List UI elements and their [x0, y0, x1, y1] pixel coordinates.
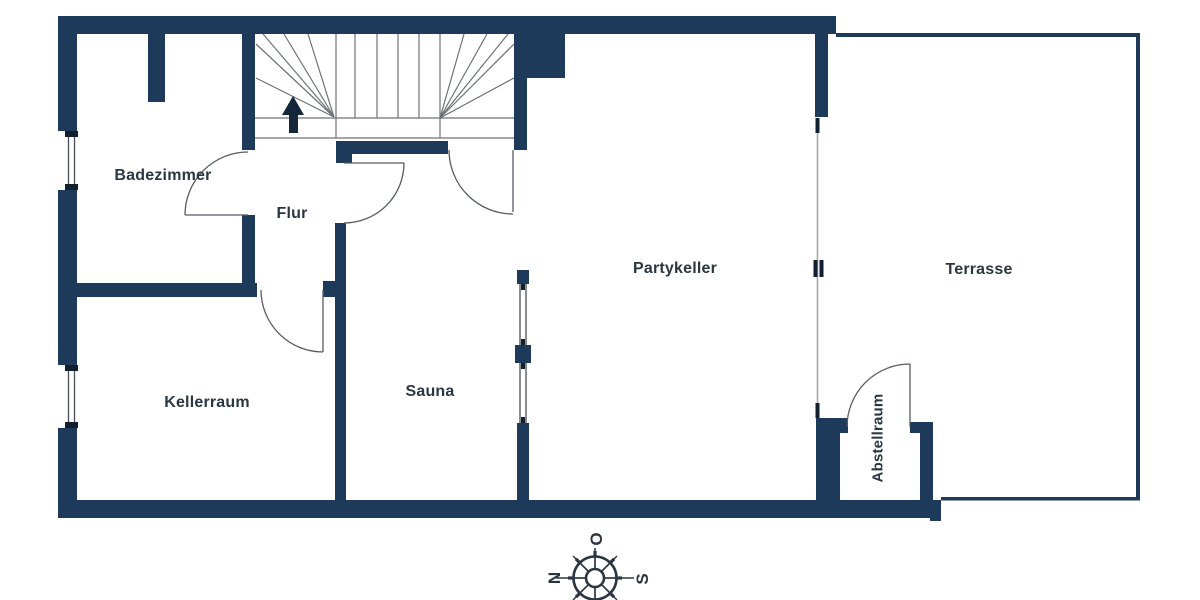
wall-left-upper	[58, 16, 77, 131]
door-stair-landing	[449, 150, 513, 214]
wall-abstellraum-right	[920, 422, 933, 500]
room-label-abstellraum: Abstellraum	[870, 394, 887, 483]
glass-cap	[521, 417, 525, 423]
wall-bottom	[58, 500, 941, 518]
terrace-partition-line	[814, 118, 824, 418]
compass-letter-south: S	[633, 573, 653, 584]
glass-cap	[521, 284, 525, 290]
room-label-terrasse: Terrasse	[945, 261, 1012, 279]
stairs-up-arrow-icon	[282, 96, 304, 133]
terrace-wall-bottom	[941, 497, 1140, 501]
wall-under-stairs-step	[336, 141, 352, 163]
wall-sauna-glass-mid	[515, 345, 531, 363]
wall-bottom-end-step	[930, 518, 941, 521]
room-label-badezimmer: Badezimmer	[114, 167, 211, 185]
partition-cap-top	[816, 118, 820, 133]
wall-flur-sauna	[335, 223, 346, 500]
doors	[185, 150, 910, 427]
window-cap	[65, 365, 78, 371]
window-badezimmer	[65, 131, 78, 190]
wall-left-middle	[58, 190, 77, 365]
wall-under-stairs	[336, 141, 448, 154]
wall-sauna-glass-stub	[517, 270, 529, 284]
terrace-wall-top	[836, 33, 1140, 37]
partition-cap-bottom	[816, 403, 820, 418]
wall-partykeller-terrasse	[815, 34, 828, 117]
exterior-walls	[58, 16, 941, 521]
floor-plan: Badezimmer Flur Kellerraum Sauna Partyke…	[0, 0, 1200, 600]
wall-stair-right-block	[527, 34, 565, 78]
wall-badezimmer-kellerraum-divider	[77, 283, 257, 297]
window-kellerraum	[65, 365, 78, 428]
interior-walls	[77, 34, 933, 500]
compass-rose-icon	[556, 548, 634, 600]
room-label-partykeller: Partykeller	[633, 260, 717, 278]
wall-abstellraum-top-left	[816, 418, 848, 433]
partition-marker-bar-1	[814, 260, 818, 277]
wall-top	[58, 16, 836, 34]
wall-abstellraum-top-right	[910, 422, 933, 433]
wall-kellerraum-door-jamb	[323, 281, 336, 297]
terrace-wall-right	[1136, 33, 1140, 500]
wall-badezimmer-right-upper	[242, 34, 255, 150]
door-flur-sauna	[344, 163, 404, 223]
partition-marker-bar-2	[820, 260, 824, 277]
floor-plan-drawing	[0, 0, 1200, 600]
room-label-sauna: Sauna	[405, 383, 454, 401]
door-kellerraum	[261, 290, 323, 352]
room-label-kellerraum: Kellerraum	[164, 394, 250, 412]
window-cap	[65, 422, 78, 428]
compass-letter-east: O	[587, 532, 607, 545]
room-label-flur: Flur	[276, 205, 307, 223]
wall-badezimmer-stub	[148, 34, 165, 102]
wall-stair-right	[514, 34, 527, 150]
compass-letter-north: N	[545, 572, 565, 584]
wall-sauna-glass-lower	[517, 423, 529, 500]
window-cap	[65, 131, 78, 137]
window-cap	[65, 184, 78, 190]
glass-cap	[521, 339, 525, 345]
glass-cap	[521, 363, 525, 369]
